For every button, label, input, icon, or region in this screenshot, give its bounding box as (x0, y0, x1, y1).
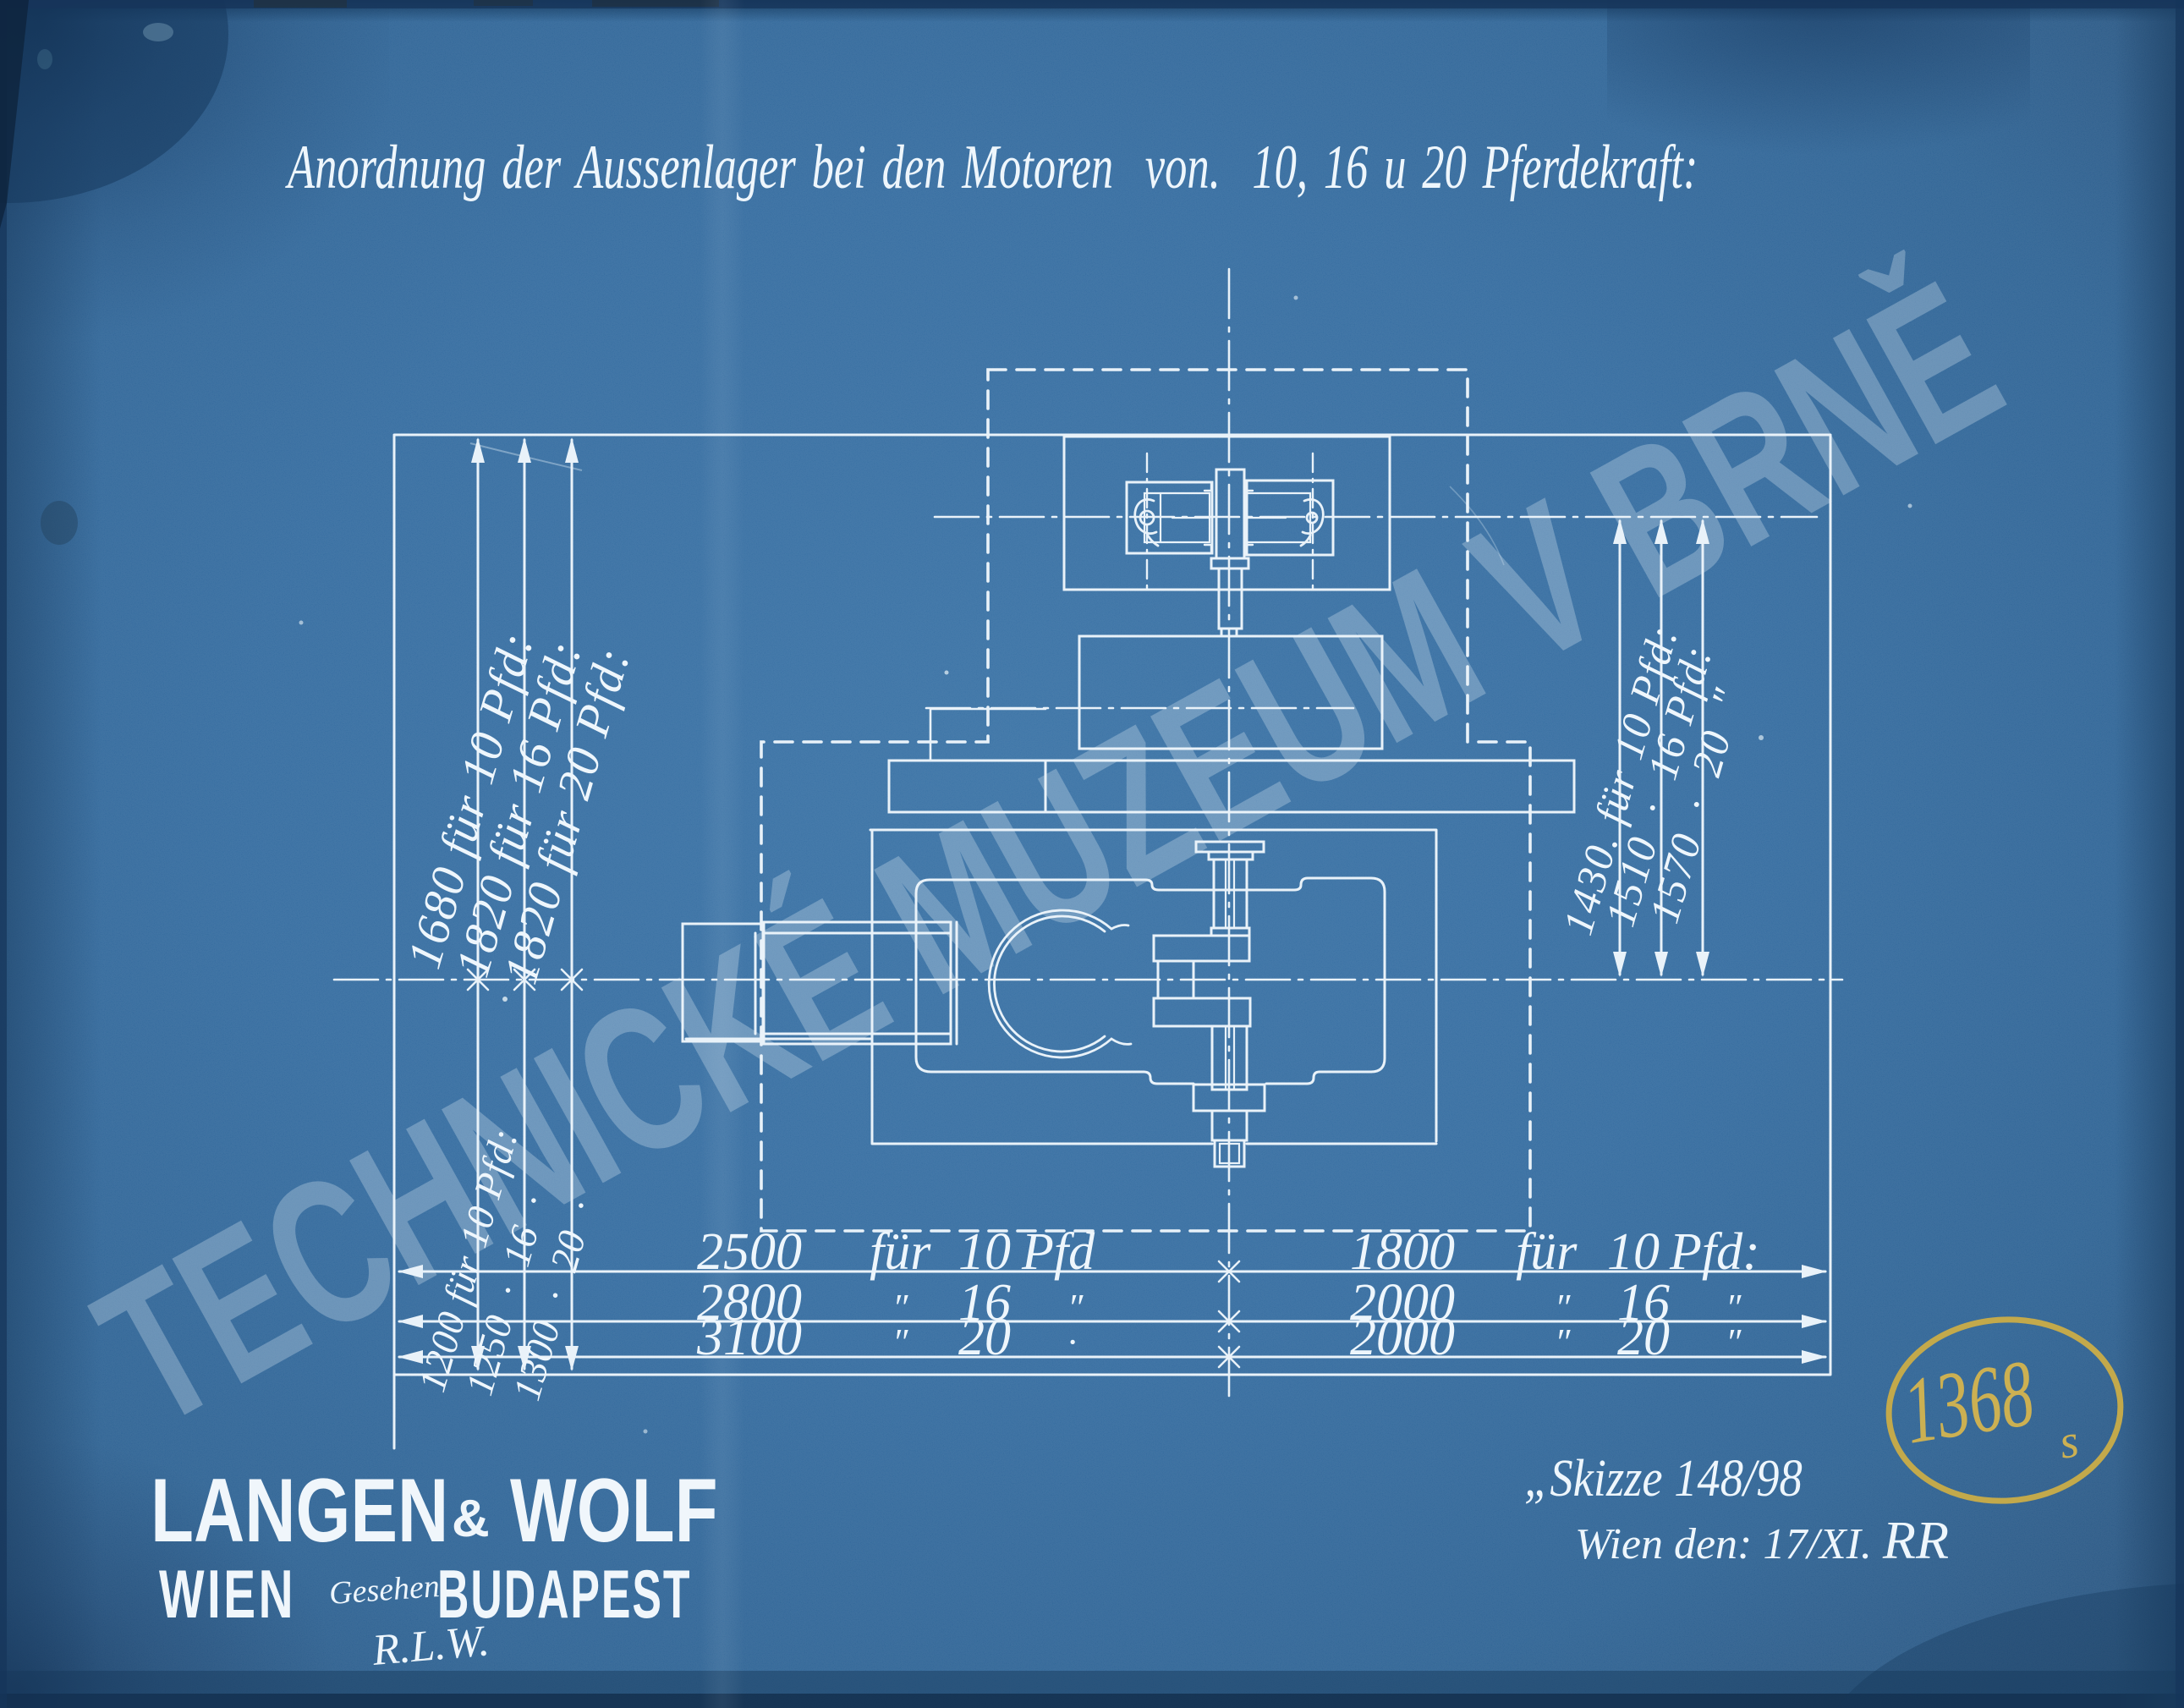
svg-text:1800für10Pfd:: 1800für10Pfd: (1350, 1223, 1760, 1281)
svg-text:2500für10Pfd: 2500für10Pfd (697, 1223, 1095, 1281)
svg-text:Anordnung der Aussenlager bei: Anordnung der Aussenlager bei den Motore… (285, 132, 1698, 201)
svg-text:&: & (452, 1490, 490, 1548)
svg-text:WIEN: WIEN (159, 1556, 296, 1632)
svg-text:„Skizze 148/98: „Skizze 148/98 (1524, 1449, 1803, 1508)
svg-text:1368: 1368 (1896, 1340, 2040, 1464)
svg-text:LANGEN: LANGEN (151, 1460, 448, 1561)
svg-text:R.L.W.: R.L.W. (370, 1617, 491, 1675)
svg-text:WOLF: WOLF (510, 1460, 718, 1561)
